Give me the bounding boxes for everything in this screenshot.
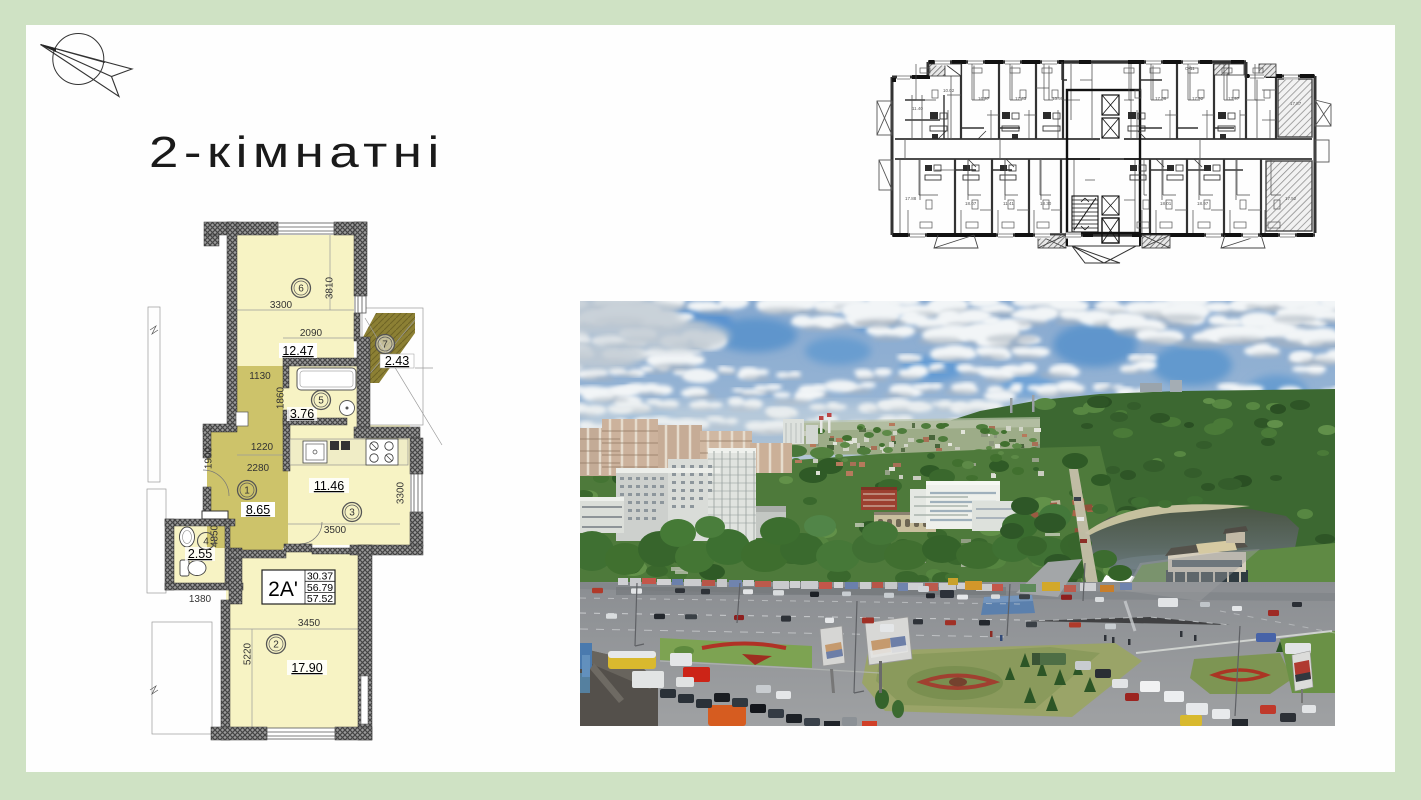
svg-text:17.90: 17.90: [291, 661, 322, 675]
svg-text:1860: 1860: [276, 386, 287, 409]
svg-text:12.47: 12.47: [282, 344, 313, 358]
svg-text:11.41: 11.41: [1003, 201, 1014, 206]
svg-text:16.97: 16.97: [978, 96, 990, 101]
svg-text:17.43: 17.43: [1015, 96, 1027, 101]
svg-text:4850: 4850: [210, 524, 221, 547]
svg-text:11.40: 11.40: [912, 106, 923, 111]
svg-text:2280: 2280: [247, 463, 270, 474]
svg-text:17.87: 17.87: [1290, 101, 1302, 106]
svg-text:1130: 1130: [249, 371, 271, 382]
svg-text:17.88: 17.88: [905, 196, 917, 201]
svg-text:6: 6: [298, 284, 304, 295]
svg-text:13.97: 13.97: [1228, 96, 1240, 101]
svg-text:3810: 3810: [325, 276, 336, 299]
svg-text:18.97: 18.97: [1197, 201, 1209, 206]
svg-text:3500: 3500: [324, 525, 347, 536]
svg-text:10.02: 10.02: [943, 88, 955, 93]
svg-text:1900: 1900: [204, 446, 215, 469]
svg-text:3: 3: [349, 508, 355, 519]
svg-text:4: 4: [203, 537, 209, 548]
svg-text:17.86: 17.86: [1155, 96, 1167, 101]
svg-text:11.46: 11.46: [314, 479, 344, 493]
svg-text:3300: 3300: [270, 300, 293, 311]
svg-text:3300: 3300: [396, 481, 407, 504]
svg-text:О-11: О-11: [1185, 66, 1195, 71]
svg-text:18.07: 18.07: [965, 201, 977, 206]
svg-text:17.92: 17.92: [1192, 96, 1204, 101]
svg-text:30.37: 30.37: [307, 571, 333, 583]
svg-text:5220: 5220: [243, 642, 254, 665]
svg-text:2: 2: [273, 640, 279, 651]
svg-text:1380: 1380: [189, 594, 212, 605]
svg-text:3.76: 3.76: [290, 407, 314, 421]
svg-text:7: 7: [382, 340, 388, 351]
svg-text:2090: 2090: [300, 328, 323, 339]
svg-text:3450: 3450: [298, 618, 321, 629]
svg-text:57.52: 57.52: [307, 593, 333, 605]
svg-text:56.79: 56.79: [307, 582, 333, 594]
svg-text:1220: 1220: [251, 442, 274, 453]
svg-text:18.30: 18.30: [1040, 201, 1052, 206]
svg-text:2А': 2А': [268, 578, 298, 601]
svg-text:17.52: 17.52: [1285, 196, 1297, 201]
svg-text:8.65: 8.65: [246, 503, 270, 517]
svg-text:2.43: 2.43: [385, 354, 409, 368]
svg-text:1: 1: [244, 486, 250, 497]
svg-text:13.99: 13.99: [1052, 96, 1064, 101]
svg-text:18.01: 18.01: [1160, 201, 1172, 206]
svg-text:5: 5: [318, 396, 324, 407]
